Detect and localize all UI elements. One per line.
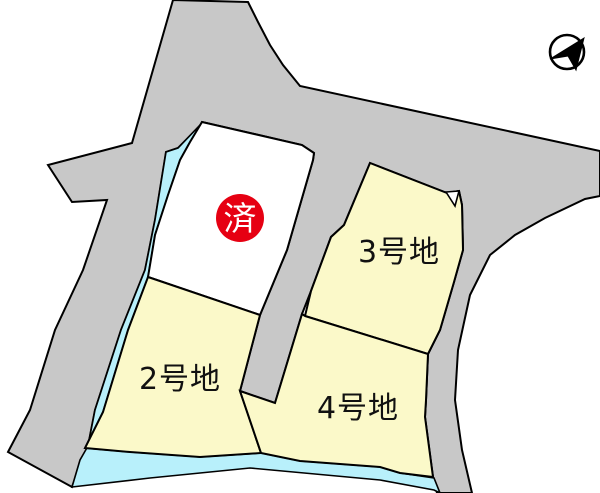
lot-map-svg: 済 2号地 3号地 4号地 (0, 0, 600, 493)
plot-lot2-label: 2号地 (139, 362, 221, 397)
lot-map: 済 2号地 3号地 4号地 (0, 0, 600, 493)
plot-lot3-label: 3号地 (358, 235, 440, 270)
sold-badge-label: 済 (224, 199, 257, 238)
north-arrow-icon (550, 35, 584, 70)
sold-badge: 済 (216, 194, 264, 242)
plot-lot4-label: 4号地 (317, 391, 399, 426)
